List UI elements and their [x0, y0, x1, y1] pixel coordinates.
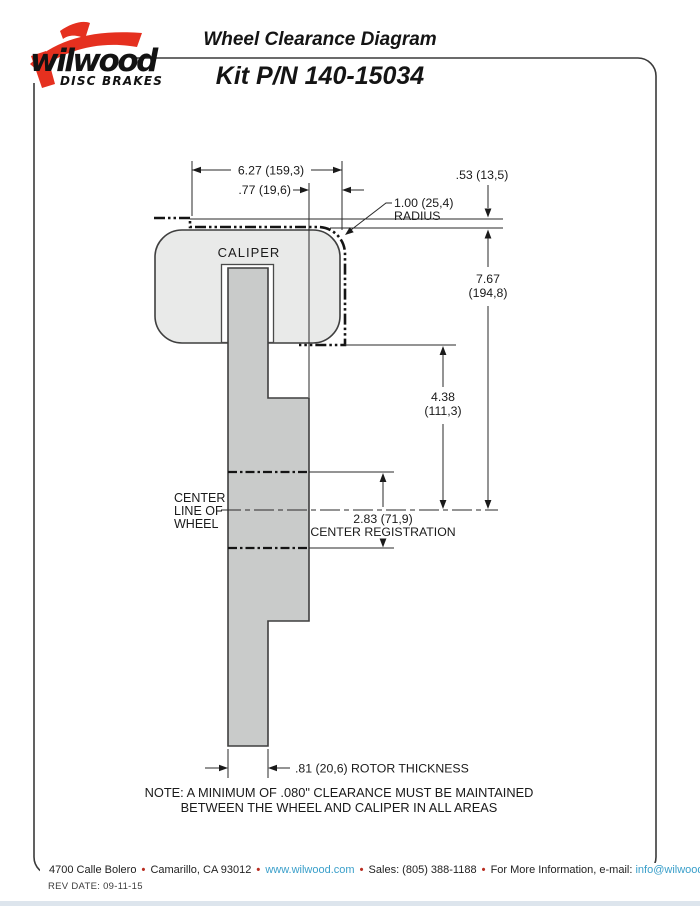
dim-rotor-thickness-text: .81 (20,6) ROTOR THICKNESS — [295, 762, 469, 776]
dim-depth-arrow-top — [440, 346, 447, 355]
rev-date: REV DATE: 09-11-15 — [48, 881, 143, 892]
footer-email-link[interactable]: info@wilwood.com — [635, 864, 700, 876]
dim-lip-arrow-left — [300, 187, 309, 193]
centerline-label-3: WHEEL — [174, 517, 219, 531]
dim-width-arrow-right — [333, 167, 342, 173]
dim-center-reg-value-text: 2.83 (71,9) — [353, 512, 412, 526]
footer-city: Camarillo, CA 93012 — [150, 864, 251, 876]
wilwood-logo: wilwood DISC BRAKES — [0, 0, 200, 100]
dim-width-arrow-left — [192, 167, 201, 173]
footer-sales-phone: Sales: (805) 388-1188 — [369, 864, 477, 876]
dim-lip-text: .77 (19,6) — [238, 183, 291, 197]
wheel-clearance-diagram: 6.27 (159,3) .77 (19,6) 1.00 (25,4) RADI… — [0, 0, 700, 906]
catalog-page: wilwood DISC BRAKES Wheel Clearance Diag… — [0, 0, 700, 906]
dim-clearance-text: .53 (13,5) — [456, 168, 509, 182]
dim-rotor-arrow-left — [219, 765, 228, 771]
footer-bullet-icon: • — [254, 864, 262, 876]
frame-border-left-bottom — [34, 83, 640, 875]
frame-border-top-right — [133, 58, 656, 875]
dim-width-text: 6.27 (159,3) — [238, 164, 304, 178]
note-line-1: NOTE: A MINIMUM OF .080" CLEARANCE MUST … — [145, 785, 534, 800]
centerline-label-2: LINE OF — [174, 504, 223, 518]
dim-clearance-arrow — [485, 209, 492, 218]
footer-info-text: For More Information, e-mail: — [491, 864, 633, 876]
logo-brush-accent — [60, 22, 90, 39]
dim-overall-arrow-bottom — [485, 500, 492, 509]
dim-overall-arrow-top — [485, 230, 492, 239]
centerline-label-1: CENTER — [174, 491, 225, 505]
dim-center-reg-arrow-top — [380, 473, 387, 482]
dim-lip-arrow-right — [342, 187, 351, 193]
dim-rotor-arrow-right — [268, 765, 277, 771]
footer: 4700 Calle Bolero • Camarillo, CA 93012 … — [40, 863, 660, 877]
dim-overall-text-1: 7.67 — [476, 272, 500, 286]
footer-bullet-icon: • — [358, 864, 366, 876]
dim-center-reg-label-text: CENTER REGISTRATION — [310, 525, 455, 539]
footer-bullet-icon: • — [480, 864, 488, 876]
footer-address: 4700 Calle Bolero — [49, 864, 136, 876]
dim-depth-arrow-bottom — [440, 500, 447, 509]
dim-center-reg-arrow-bottom — [380, 539, 387, 548]
footer-website-link[interactable]: www.wilwood.com — [265, 864, 354, 876]
page-bottom-strip — [0, 901, 700, 906]
logo-tagline-text: DISC BRAKES — [60, 74, 163, 88]
footer-contact-line: 4700 Calle Bolero • Camarillo, CA 93012 … — [40, 863, 700, 877]
note-line-2: BETWEEN THE WHEEL AND CALIPER IN ALL ARE… — [181, 800, 498, 815]
dim-overall-text-2: (194,8) — [469, 286, 508, 300]
caliper-label: CALIPER — [218, 245, 281, 260]
footer-bullet-icon: • — [140, 864, 148, 876]
radius-value-text: 1.00 (25,4) — [394, 196, 453, 210]
dim-depth-text-2: (111,3) — [424, 404, 461, 418]
dim-depth-text-1: 4.38 — [431, 390, 455, 404]
radius-word-text: RADIUS — [394, 209, 440, 223]
